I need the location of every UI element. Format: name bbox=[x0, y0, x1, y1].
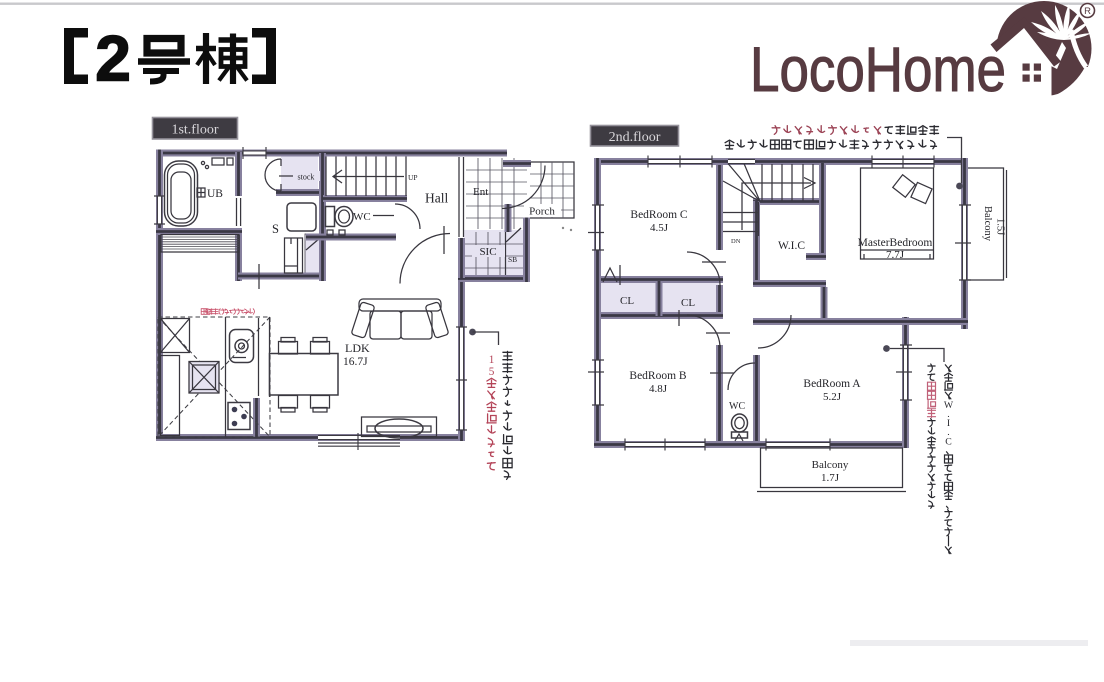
svg-text:SIC: SIC bbox=[479, 246, 496, 258]
svg-text:DN: DN bbox=[731, 238, 741, 245]
svg-text:1.5J: 1.5J bbox=[995, 218, 1006, 235]
svg-text:WC: WC bbox=[353, 211, 371, 223]
svg-text:Balcony: Balcony bbox=[982, 206, 993, 242]
svg-text:1st.floor: 1st.floor bbox=[171, 123, 218, 138]
svg-text:16.7J: 16.7J bbox=[343, 356, 368, 368]
svg-text:UP: UP bbox=[408, 173, 418, 182]
svg-text:5: 5 bbox=[489, 366, 495, 378]
svg-text:LDK: LDK bbox=[345, 341, 370, 355]
svg-text:CL: CL bbox=[620, 295, 634, 307]
svg-text:Ent: Ent bbox=[473, 186, 488, 198]
svg-text:5.2J: 5.2J bbox=[823, 391, 842, 403]
svg-text:Porch: Porch bbox=[529, 206, 555, 218]
svg-text:W.I.C: W.I.C bbox=[778, 240, 805, 252]
svg-text:R: R bbox=[1084, 6, 1091, 17]
svg-text:CL: CL bbox=[681, 297, 695, 309]
svg-text:BedRoom A: BedRoom A bbox=[803, 378, 861, 390]
svg-text:2: 2 bbox=[95, 23, 131, 95]
svg-text:Balcony: Balcony bbox=[812, 459, 849, 471]
svg-text:Hall: Hall bbox=[425, 191, 448, 206]
svg-text:1.7J: 1.7J bbox=[821, 472, 840, 484]
svg-text:MasterBedroom: MasterBedroom bbox=[858, 237, 933, 249]
svg-text:stock: stock bbox=[298, 173, 315, 182]
svg-text:4.5J: 4.5J bbox=[650, 222, 669, 234]
svg-text:1: 1 bbox=[489, 354, 495, 366]
svg-text:BedRoom C: BedRoom C bbox=[630, 209, 688, 221]
svg-text:LocoHome: LocoHome bbox=[750, 35, 1006, 105]
svg-text:C: C bbox=[945, 436, 952, 447]
svg-text:BedRoom B: BedRoom B bbox=[629, 370, 687, 382]
svg-text:UB: UB bbox=[207, 188, 223, 200]
svg-text:2nd.floor: 2nd.floor bbox=[609, 130, 661, 145]
svg-text:WC: WC bbox=[729, 401, 745, 412]
svg-text:SB: SB bbox=[508, 255, 517, 264]
svg-text:S: S bbox=[272, 222, 279, 236]
svg-text:4.8J: 4.8J bbox=[649, 383, 668, 395]
